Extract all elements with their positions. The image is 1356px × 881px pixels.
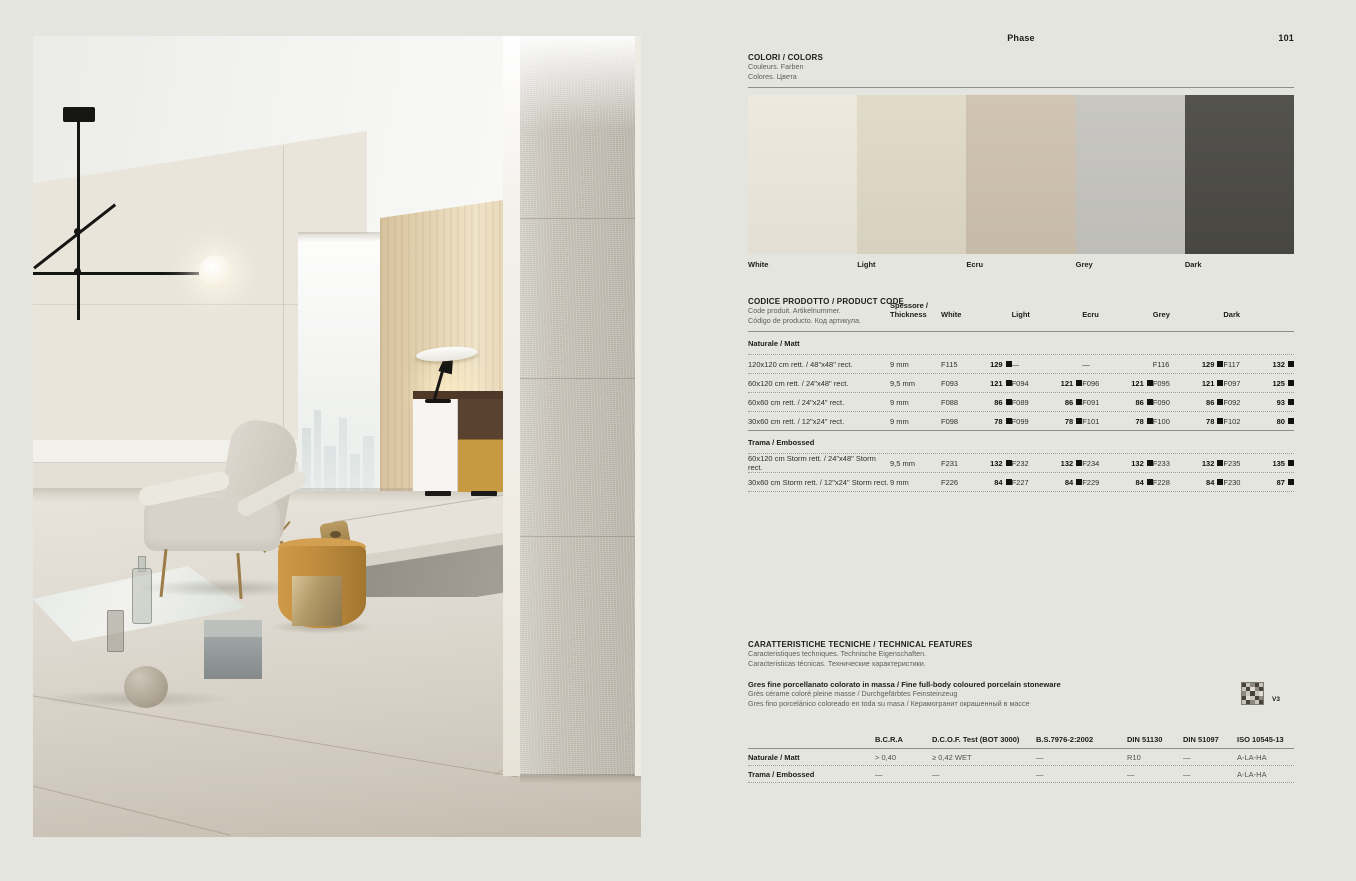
colors-subtitle: Couleurs. Farben: [748, 62, 1294, 72]
product-row: 60x120 cm Storm rett. / 24"x48" Storm re…: [748, 453, 1294, 472]
pendant-lamp: [33, 96, 253, 311]
price-value: 84: [1109, 478, 1144, 487]
price-value: 121: [1180, 379, 1215, 388]
mustard-pouf: [278, 522, 366, 634]
table-lamp: [416, 341, 486, 403]
price-value: 84: [1039, 478, 1074, 487]
product-row: 30x60 cm rett. / 12"x24" rect. 9 mm F098…: [748, 411, 1294, 430]
pouf-handle-hole: [330, 531, 341, 538]
page-number: 101: [1278, 33, 1294, 43]
unit-square-icon: [1288, 479, 1294, 485]
product-row: 120x120 cm rett. / 48"x48" rect. 9 mm F1…: [748, 354, 1294, 373]
column-header-dark: Dark: [1223, 310, 1294, 319]
product-code: F232: [1012, 459, 1039, 468]
thickness-value: 9 mm: [890, 398, 941, 407]
table-column-headers: Spessore /Thickness White Light Ecru Gre…: [890, 301, 1294, 319]
swatch-label: Ecru: [966, 260, 1075, 269]
price-cell: F117132: [1223, 360, 1294, 369]
embossed-texture: [520, 36, 635, 776]
value: —: [1183, 753, 1237, 762]
unit-square-icon: [1288, 361, 1294, 367]
size-label: 120x120 cm rett. / 48"x48" rect.: [748, 360, 890, 369]
swatch-labels: White Light Ecru Grey Dark: [748, 260, 1294, 269]
price-cell: F22684: [941, 478, 1012, 487]
column-header: B.C.R.A: [875, 735, 932, 744]
price-cell: F093121: [941, 379, 1012, 388]
product-code: F100: [1153, 417, 1180, 426]
color-swatches: [748, 95, 1294, 254]
column-header: DIN 51097: [1183, 735, 1237, 744]
product-code: F116: [1153, 360, 1180, 369]
sideboard-leg: [471, 491, 497, 496]
price-value: 121: [1109, 379, 1144, 388]
room-photo: [33, 36, 641, 837]
price-value: 84: [1180, 478, 1215, 487]
pendant-joint: [74, 228, 81, 235]
divider: [748, 87, 1294, 88]
row-label: Trama / Embossed: [748, 770, 875, 779]
column-header: DIN 51130: [1127, 735, 1183, 744]
swatch-grey: [1076, 95, 1185, 254]
lamp-base: [425, 399, 451, 403]
price-cell: F08886: [941, 398, 1012, 407]
product-code: F095: [1153, 379, 1180, 388]
colors-section: COLORI / COLORS Couleurs. Farben Colores…: [748, 53, 1294, 269]
page-header: Phase 101: [748, 33, 1294, 45]
price-cell: F08986: [1012, 398, 1083, 407]
swatch-label: Grey: [1076, 260, 1185, 269]
sideboard-door: [413, 399, 458, 491]
price-cell: F22784: [1012, 478, 1083, 487]
concrete-cube-leg: [204, 620, 262, 637]
price-value: 93: [1250, 398, 1285, 407]
price-cell: F234132: [1082, 459, 1153, 468]
price-cell: F235135: [1223, 459, 1294, 468]
swatch-label: Dark: [1185, 260, 1294, 269]
product-code-header: CODICE PRODOTTO / PRODUCT CODE Code prod…: [748, 297, 1294, 329]
size-label: 30x60 cm Storm rett. / 12"x24" Storm rec…: [748, 478, 890, 487]
technical-row: Naturale / Matt > 0,40 ≥ 0,42 WET — R10 …: [748, 749, 1294, 766]
price-value: 125: [1250, 379, 1285, 388]
thickness-value: 9 mm: [890, 360, 941, 369]
price-cell: F096121: [1082, 379, 1153, 388]
collection-title: Phase: [748, 33, 1294, 43]
price-cell: F116129: [1153, 360, 1224, 369]
product-code: F098: [941, 417, 968, 426]
technical-subtitle: Caracteristicas técnicas. Технические ха…: [748, 659, 1294, 669]
price-value: 86: [968, 398, 1003, 407]
material-description: Gres fine porcellanato colorato in massa…: [748, 680, 1294, 708]
technical-features-section: CARATTERISTICHE TECNICHE / TECHNICAL FEA…: [748, 640, 1294, 783]
product-code: F092: [1223, 398, 1250, 407]
thickness-column-header: Spessore /Thickness: [890, 301, 941, 319]
colors-subtitle: Colores. Цвета: [748, 72, 1294, 82]
price-value: 80: [1250, 417, 1285, 426]
column-header: ISO 10545-13: [1237, 735, 1294, 744]
price-value: 132: [1109, 459, 1144, 468]
product-code: F115: [941, 360, 968, 369]
product-code: F231: [941, 459, 968, 468]
thickness-value: 9 mm: [890, 478, 941, 487]
product-code: F097: [1223, 379, 1250, 388]
material-title: Gres fine porcellanato colorato in massa…: [748, 680, 1294, 689]
size-label: 60x60 cm rett. / 24"x24" rect.: [748, 398, 890, 407]
price-value: 129: [1180, 360, 1215, 369]
value: —: [875, 770, 932, 779]
group-title-naturale: Naturale / Matt: [748, 332, 1294, 354]
product-code: F094: [1012, 379, 1039, 388]
price-cell: —: [1012, 360, 1083, 369]
price-value: 86: [1180, 398, 1215, 407]
pillar-side-face: [503, 36, 520, 776]
unit-square-icon: [1288, 418, 1294, 424]
value: R10: [1127, 753, 1183, 762]
price-cell: F09086: [1153, 398, 1224, 407]
product-code: F235: [1223, 459, 1250, 468]
technical-table: B.C.R.A D.C.O.F. Test (BOT 3000) B.S.797…: [748, 730, 1294, 783]
column-header: B.S.7976-2:2002: [1036, 735, 1127, 744]
pendant-rod-vertical: [77, 122, 80, 320]
value: ≥ 0,42 WET: [932, 753, 1036, 762]
swatch-label: White: [748, 260, 857, 269]
column-header: D.C.O.F. Test (BOT 3000): [932, 735, 1036, 744]
value: A-LA-HA: [1237, 770, 1294, 779]
price-value: 132: [1180, 459, 1215, 468]
product-code: F096: [1082, 379, 1109, 388]
product-code: F117: [1223, 360, 1250, 369]
technical-title: CARATTERISTICHE TECNICHE / TECHNICAL FEA…: [748, 640, 1294, 649]
far-right-wall: [635, 36, 641, 776]
technical-row: Trama / Embossed — — — — — A-LA-HA: [748, 766, 1294, 783]
product-code: F229: [1082, 478, 1109, 487]
column-header-white: White: [941, 310, 1012, 319]
size-label: 60x120 cm Storm rett. / 24"x48" Storm re…: [748, 454, 890, 472]
price-cell: F22984: [1082, 478, 1153, 487]
swatch-ecru: [966, 95, 1075, 254]
product-code: F099: [1012, 417, 1039, 426]
price-cell: F23087: [1223, 478, 1294, 487]
embossed-tile-pillar: [520, 36, 635, 776]
product-code: F226: [941, 478, 968, 487]
value: —: [1036, 770, 1127, 779]
swatch-white: [748, 95, 857, 254]
price-value: 121: [1039, 379, 1074, 388]
unit-square-icon: [1288, 380, 1294, 386]
unit-square-icon: [1288, 399, 1294, 405]
swatch-dark: [1185, 95, 1294, 254]
value: > 0,40: [875, 753, 932, 762]
product-code: F089: [1012, 398, 1039, 407]
value: —: [932, 770, 1036, 779]
price-cell: F10280: [1223, 417, 1294, 426]
price-value: 78: [1109, 417, 1144, 426]
swatch-light: [857, 95, 966, 254]
pillar-base-shadow: [520, 774, 641, 784]
price-value: 121: [968, 379, 1003, 388]
product-code: F101: [1082, 417, 1109, 426]
size-label: 60x120 cm rett. / 24"x48" rect.: [748, 379, 890, 388]
material-subtitle: Gres fino porcelánico coloreado en toda …: [748, 699, 1294, 709]
pillar-top-light: [520, 36, 635, 131]
thickness-value: 9 mm: [890, 417, 941, 426]
price-value: 132: [1250, 360, 1285, 369]
price-value: 135: [1250, 459, 1285, 468]
colors-title: COLORI / COLORS: [748, 53, 1294, 62]
column-header-light: Light: [1012, 310, 1083, 319]
stone-sphere-leg: [124, 666, 168, 708]
value: —: [1127, 770, 1183, 779]
product-code: F090: [1153, 398, 1180, 407]
product-row: 60x120 cm rett. / 24"x48" rect. 9,5 mm F…: [748, 373, 1294, 392]
price-cell: F097125: [1223, 379, 1294, 388]
pendant-globe-light: [199, 255, 232, 288]
column-header-grey: Grey: [1153, 310, 1224, 319]
price-value: 78: [968, 417, 1003, 426]
product-code: F234: [1082, 459, 1109, 468]
value: —: [1036, 753, 1127, 762]
product-code: F088: [941, 398, 968, 407]
pendant-ceiling-mount: [63, 107, 95, 122]
product-code: F228: [1153, 478, 1180, 487]
concrete-cube-leg: [204, 637, 262, 679]
price-cell: F233132: [1153, 459, 1224, 468]
product-code: —: [1082, 360, 1109, 369]
sideboard-leg: [425, 491, 451, 496]
shade-variation-icon: [1241, 682, 1264, 705]
column-header-ecru: Ecru: [1082, 310, 1153, 319]
price-cell: —: [1082, 360, 1153, 369]
pouf-brass-plate: [292, 576, 342, 626]
price-value: 132: [968, 459, 1003, 468]
value: —: [1183, 770, 1237, 779]
product-code: F233: [1153, 459, 1180, 468]
glass-bottle: [107, 610, 124, 652]
product-row: 30x60 cm Storm rett. / 12"x24" Storm rec…: [748, 472, 1294, 492]
price-cell: F115129: [941, 360, 1012, 369]
pillar-tile-joint: [520, 536, 635, 537]
price-value: 86: [1109, 398, 1144, 407]
product-code: F227: [1012, 478, 1039, 487]
product-code: —: [1012, 360, 1039, 369]
lamp-stem: [433, 369, 445, 401]
spec-panel: Phase 101 COLORI / COLORS Couleurs. Farb…: [748, 33, 1294, 783]
product-code: F230: [1223, 478, 1250, 487]
price-cell: F09978: [1012, 417, 1083, 426]
product-code: F091: [1082, 398, 1109, 407]
thickness-value: 9,5 mm: [890, 379, 941, 388]
price-cell: F09878: [941, 417, 1012, 426]
group-title-trama: Trama / Embossed: [748, 430, 1294, 453]
price-value: 86: [1039, 398, 1074, 407]
price-cell: F22884: [1153, 478, 1224, 487]
material-subtitle: Grès cérame coloré pleine masse / Durchg…: [748, 689, 1294, 699]
price-value: 129: [968, 360, 1003, 369]
value: A-LA-HA: [1237, 753, 1294, 762]
price-cell: F232132: [1012, 459, 1083, 468]
size-label: 30x60 cm rett. / 12"x24" rect.: [748, 417, 890, 426]
price-cell: F095121: [1153, 379, 1224, 388]
sideboard: [413, 391, 510, 498]
wall-tile-joint: [283, 146, 284, 446]
swatch-label: Light: [857, 260, 966, 269]
price-value: 78: [1180, 417, 1215, 426]
ceiling-soffit-shadow: [298, 232, 380, 242]
price-cell: F09186: [1082, 398, 1153, 407]
shade-variation-label: V3: [1272, 696, 1280, 703]
price-cell: F231132: [941, 459, 1012, 468]
product-row: 60x60 cm rett. / 24"x24" rect. 9 mm F088…: [748, 392, 1294, 411]
price-cell: F10178: [1082, 417, 1153, 426]
pendant-rod-diagonal: [33, 204, 116, 269]
unit-square-icon: [1288, 460, 1294, 466]
price-value: 132: [1039, 459, 1074, 468]
product-code: F102: [1223, 417, 1250, 426]
lamp-shade: [416, 345, 479, 363]
technical-table-header: B.C.R.A D.C.O.F. Test (BOT 3000) B.S.797…: [748, 730, 1294, 748]
price-value: 84: [968, 478, 1003, 487]
price-cell: F09293: [1223, 398, 1294, 407]
price-value: 87: [1250, 478, 1285, 487]
price-cell: F10078: [1153, 417, 1224, 426]
technical-subtitle: Caracteristiques techniques. Technische …: [748, 649, 1294, 659]
thickness-value: 9,5 mm: [890, 459, 941, 468]
pendant-joint: [74, 268, 81, 275]
pendant-rod-horizontal: [33, 272, 199, 275]
row-label: Naturale / Matt: [748, 753, 875, 762]
price-cell: F094121: [1012, 379, 1083, 388]
price-value: 78: [1039, 417, 1074, 426]
pillar-tile-joint: [520, 378, 635, 379]
pillar-tile-joint: [520, 218, 635, 219]
product-code: F093: [941, 379, 968, 388]
